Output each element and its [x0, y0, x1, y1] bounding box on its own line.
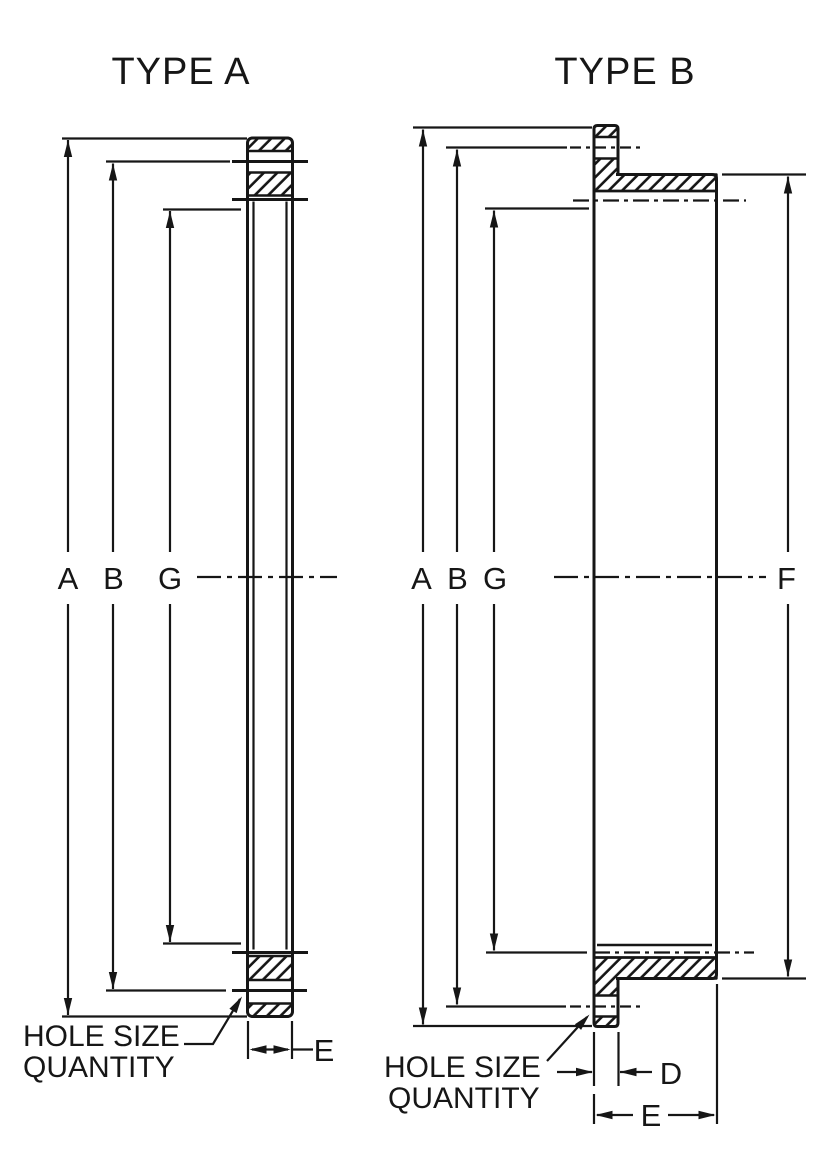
type-b-dim-label-g: G [483, 561, 507, 596]
type-b-view: TYPE B A B G F D E HOLE SIZE QUANTITY [384, 51, 806, 1133]
type-b-hole-leader [547, 1015, 590, 1062]
type-a-dim-label-e: E [314, 1033, 335, 1068]
type-b-dim-label-e: E [641, 1098, 662, 1133]
flange-types-drawing: TYPE A A B G E HOLE SIZE QUANTITY [0, 0, 830, 1159]
type-a-dim-e [248, 1021, 313, 1059]
type-a-dim-label-a: A [58, 561, 79, 596]
type-a-dim-e-lines [248, 1021, 313, 1059]
type-a-dim-label-g: G [158, 561, 182, 596]
type-b-dim-label-b: B [447, 561, 468, 596]
type-a-dim-label-b: B [103, 561, 124, 596]
type-a-callout-quantity: QUANTITY [23, 1051, 175, 1084]
type-b-callout-quantity: QUANTITY [388, 1082, 540, 1115]
type-a-title: TYPE A [111, 51, 250, 93]
type-b-dim-label-d: D [660, 1056, 682, 1091]
drawing-sheet: TYPE A A B G E HOLE SIZE QUANTITY [0, 0, 830, 1159]
type-a-hole-leader-line [184, 999, 240, 1044]
type-b-callout-hole-size: HOLE SIZE [384, 1051, 541, 1084]
type-b-dim-d [557, 1032, 652, 1086]
type-b-dim-label-f: F [777, 561, 796, 596]
type-b-sleeve-inner-lines [594, 191, 716, 958]
type-b-dim-d-arrowheads [576, 1068, 637, 1076]
type-b-title: TYPE B [554, 51, 695, 93]
type-a-bore-wall-lines [254, 202, 287, 950]
type-b-dim-d-lines [557, 1032, 652, 1086]
type-a-hole-leader [184, 997, 242, 1045]
type-a-hole-leader-arrowhead [229, 997, 242, 1014]
type-b-dim-label-a: A [411, 561, 432, 596]
type-a-callout-hole-size: HOLE SIZE [23, 1020, 180, 1053]
type-a-view: TYPE A A B G E HOLE SIZE QUANTITY [23, 51, 337, 1084]
